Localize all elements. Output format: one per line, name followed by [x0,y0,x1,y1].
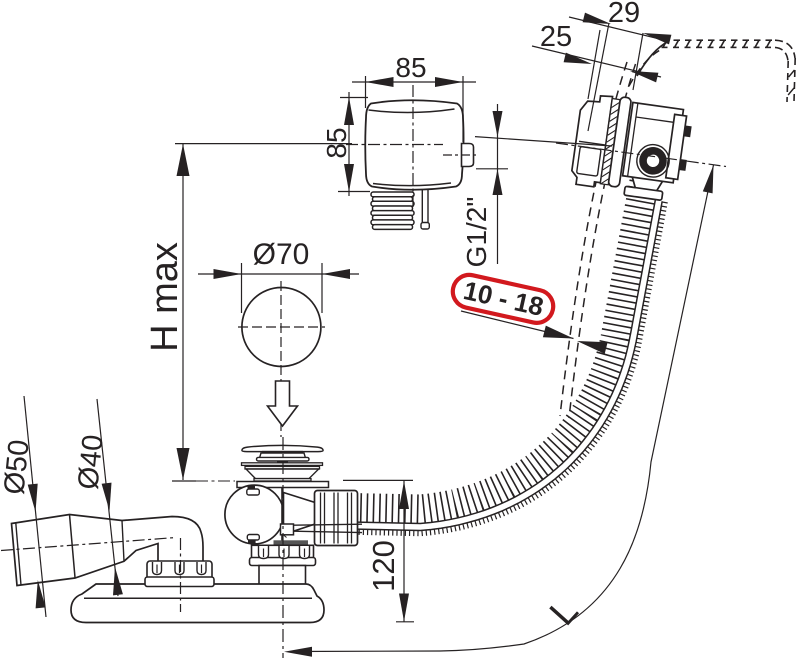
svg-text:G1/2": G1/2" [461,197,492,268]
svg-text:25: 25 [540,21,572,53]
svg-text:Ø70: Ø70 [253,238,310,271]
svg-text:H max: H max [144,242,186,352]
svg-text:85: 85 [395,52,426,83]
svg-text:120: 120 [366,540,401,592]
svg-text:Ø50: Ø50 [0,438,36,496]
svg-text:29: 29 [608,0,640,29]
svg-text:Ø40: Ø40 [72,433,109,491]
